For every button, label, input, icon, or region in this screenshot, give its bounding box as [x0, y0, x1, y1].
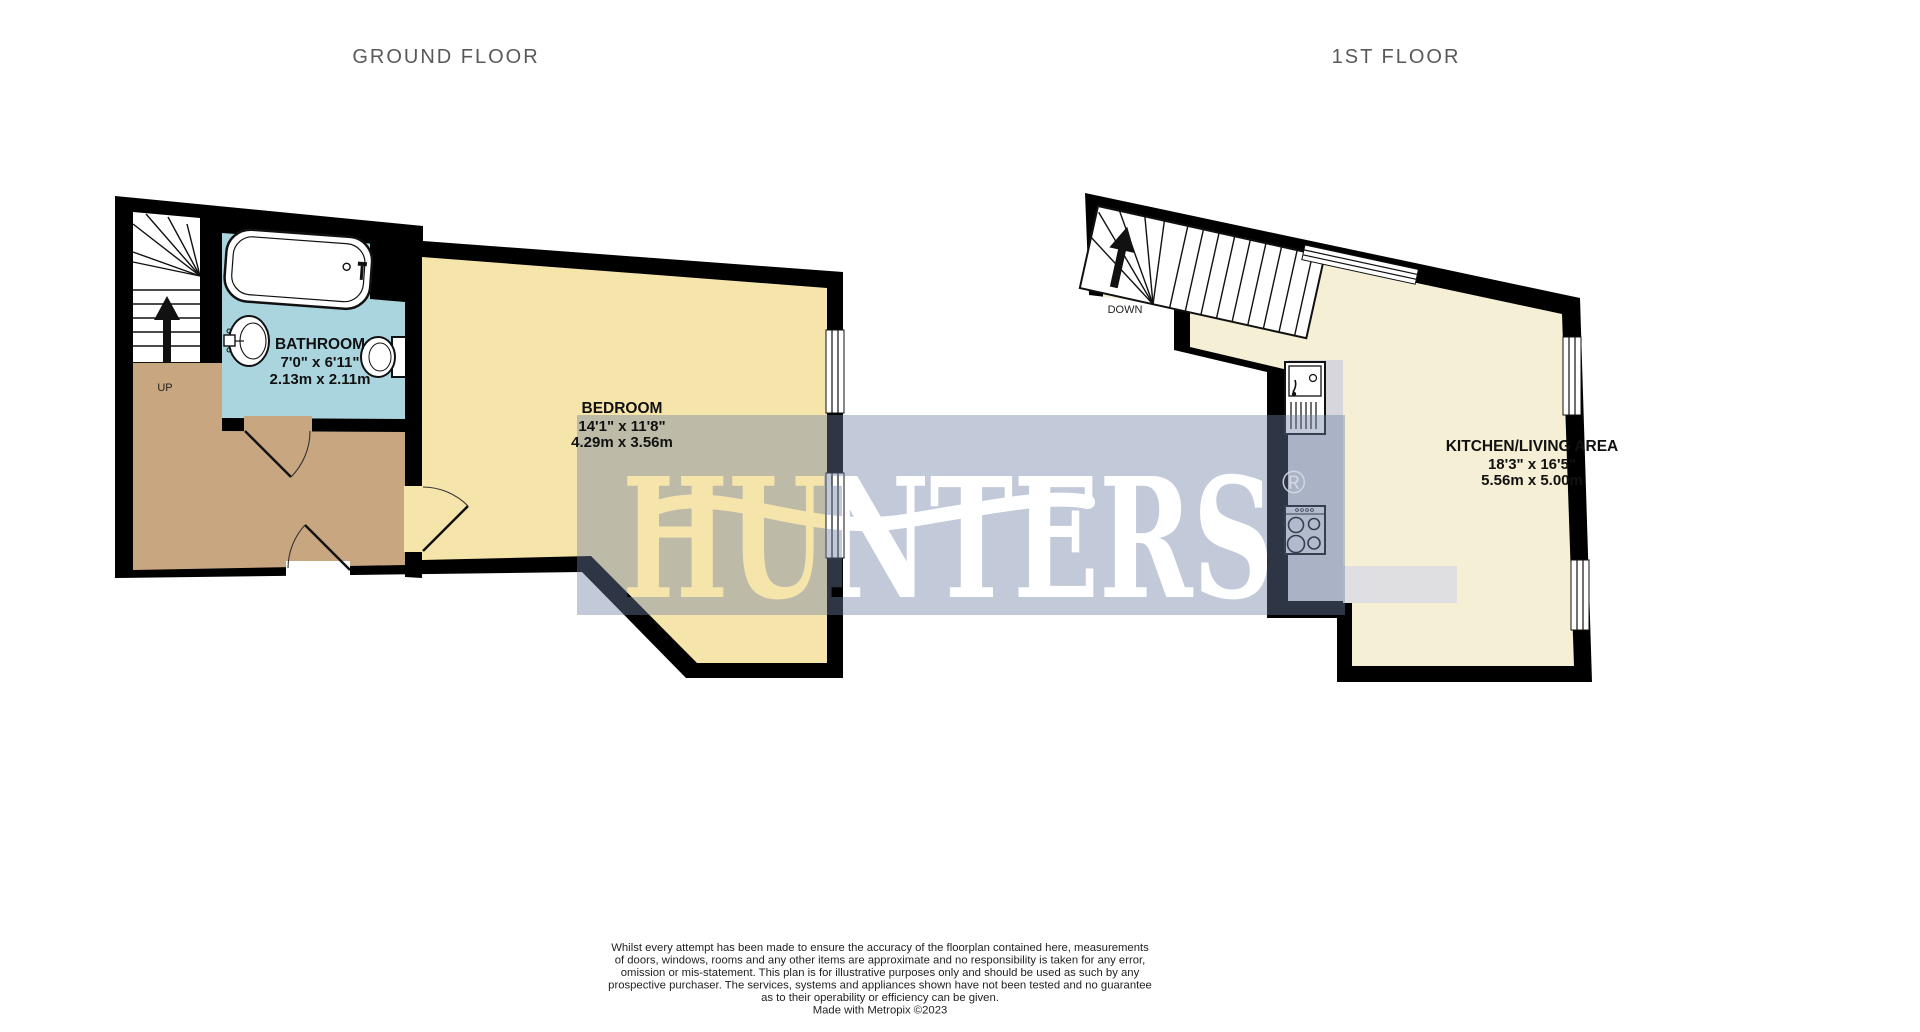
floorplan-drawing: HUNTERS ® GROUND FLOOR 1ST FLOOR UP DOWN…	[0, 0, 1920, 1032]
disclaimer-line: prospective purchaser. The services, sys…	[608, 980, 1152, 992]
first-floor-title: 1ST FLOOR	[1332, 46, 1461, 68]
bedroom-imperial: 14'1" x 11'8"	[578, 418, 665, 435]
bathroom-name: BATHROOM	[275, 336, 365, 353]
ground-floor-title: GROUND FLOOR	[352, 46, 539, 68]
kitchen-living-name: KITCHEN/LIVING AREA	[1446, 438, 1619, 455]
bedroom-name: BEDROOM	[582, 400, 663, 417]
living-window-right-upper	[1563, 337, 1581, 415]
disclaimer: Whilst every attempt has been made to en…	[608, 942, 1152, 1017]
registered-mark: ®	[1282, 464, 1306, 500]
bathroom-label: BATHROOM 7'0" x 6'11" 2.13m x 2.11m	[270, 336, 371, 388]
bedroom-metric: 4.29m x 3.56m	[571, 434, 673, 451]
up-label: UP	[157, 382, 172, 394]
kitchen-living-imperial: 18'3" x 16'5"	[1488, 456, 1576, 473]
kitchen-living-metric: 5.56m x 5.00m	[1481, 472, 1583, 489]
ground-floor-stairs	[133, 212, 200, 363]
bedroom-window-upper	[826, 330, 844, 413]
down-label: DOWN	[1108, 304, 1143, 316]
floorplan-page: HUNTERS ® GROUND FLOOR 1ST FLOOR UP DOWN…	[0, 0, 1920, 1032]
disclaimer-line: of doors, windows, rooms and any other i…	[615, 955, 1146, 967]
kitchen-counter-return	[1343, 566, 1457, 603]
bathroom-corner-wall	[370, 231, 405, 302]
bathroom-imperial: 7'0" x 6'11"	[281, 354, 360, 371]
disclaimer-line: as to their operability or efficiency ca…	[761, 992, 999, 1004]
bathtub-icon	[223, 228, 374, 310]
disclaimer-line: Whilst every attempt has been made to en…	[611, 942, 1149, 954]
ground-floor-bathroom	[222, 228, 407, 420]
watermark-band	[577, 415, 1345, 615]
living-window-right-lower	[1571, 560, 1589, 630]
disclaimer-line: omission or mis-statement. This plan is …	[621, 967, 1140, 979]
stair-bathroom-wall	[200, 216, 222, 363]
hunters-watermark: ®	[577, 415, 1345, 615]
bedroom-label: BEDROOM 14'1" x 11'8" 4.29m x 3.56m	[571, 400, 673, 451]
bathroom-metric: 2.13m x 2.11m	[270, 371, 371, 388]
disclaimer-line: Made with Metropix ©2023	[813, 1005, 948, 1017]
